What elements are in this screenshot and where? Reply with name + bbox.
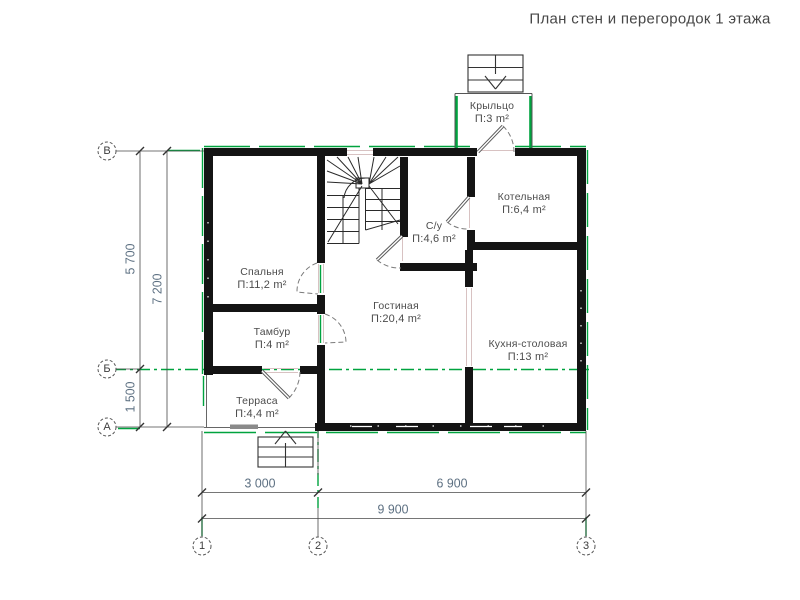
room-label-bedroom: Спальня П:11,2 m² (237, 266, 286, 292)
axis-label-3: 3 (583, 540, 589, 552)
room-area: П:4 m² (254, 339, 291, 352)
axis-green-lines (113, 96, 592, 536)
room-label-terrace: Терраса П:4,4 m² (235, 395, 279, 421)
room-label-kitchen: Кухня-столовая П:13 m² (488, 338, 567, 364)
dim-left-7200: 7 200 (150, 274, 165, 305)
axis-label-a: А (103, 421, 110, 433)
axis-label-b: Б (103, 363, 110, 375)
dim-bottom-9900: 9 900 (378, 502, 409, 517)
room-area: П:13 m² (488, 351, 567, 364)
dim-left-5700: 5 700 (123, 244, 138, 275)
room-label-living: Гостиная П:20,4 m² (371, 300, 421, 326)
dim-left-1500: 1 500 (123, 382, 138, 413)
axis-label-1: 1 (199, 540, 205, 552)
dim-bottom-3000: 3 000 (245, 476, 276, 491)
room-name: Кухня-столовая (488, 338, 567, 351)
room-name: С/у (412, 220, 456, 233)
room-area: П:11,2 m² (237, 279, 286, 292)
room-label-bathroom: С/у П:4,6 m² (412, 220, 456, 246)
room-area: П:6,4 m² (498, 204, 551, 217)
dim-bottom-6900: 6 900 (437, 476, 468, 491)
axis-label-v: В (103, 145, 110, 157)
room-name: Крыльцо (470, 100, 514, 113)
porch-steps (468, 55, 523, 92)
terrace-steps (258, 431, 313, 467)
floor-plan-drawing: План стен и перегородок 1 этажа Крыльцо … (0, 0, 800, 600)
room-name: Терраса (235, 395, 279, 408)
room-label-boiler: Котельная П:6,4 m² (498, 191, 551, 217)
room-name: Спальня (237, 266, 286, 279)
room-name: Тамбур (254, 326, 291, 339)
drawing-title: План стен и перегородок 1 этажа (529, 11, 770, 28)
room-label-porch: Крыльцо П:3 m² (470, 100, 514, 126)
room-label-vestibule: Тамбур П:4 m² (254, 326, 291, 352)
room-name: Гостиная (371, 300, 421, 313)
staircase (327, 157, 400, 244)
axis-label-2: 2 (315, 540, 321, 552)
window-marks (264, 151, 514, 373)
room-area: П:4,6 m² (412, 233, 456, 246)
room-area: П:3 m² (470, 113, 514, 126)
room-area: П:4,4 m² (235, 408, 279, 421)
room-area: П:20,4 m² (371, 313, 421, 326)
room-name: Котельная (498, 191, 551, 204)
